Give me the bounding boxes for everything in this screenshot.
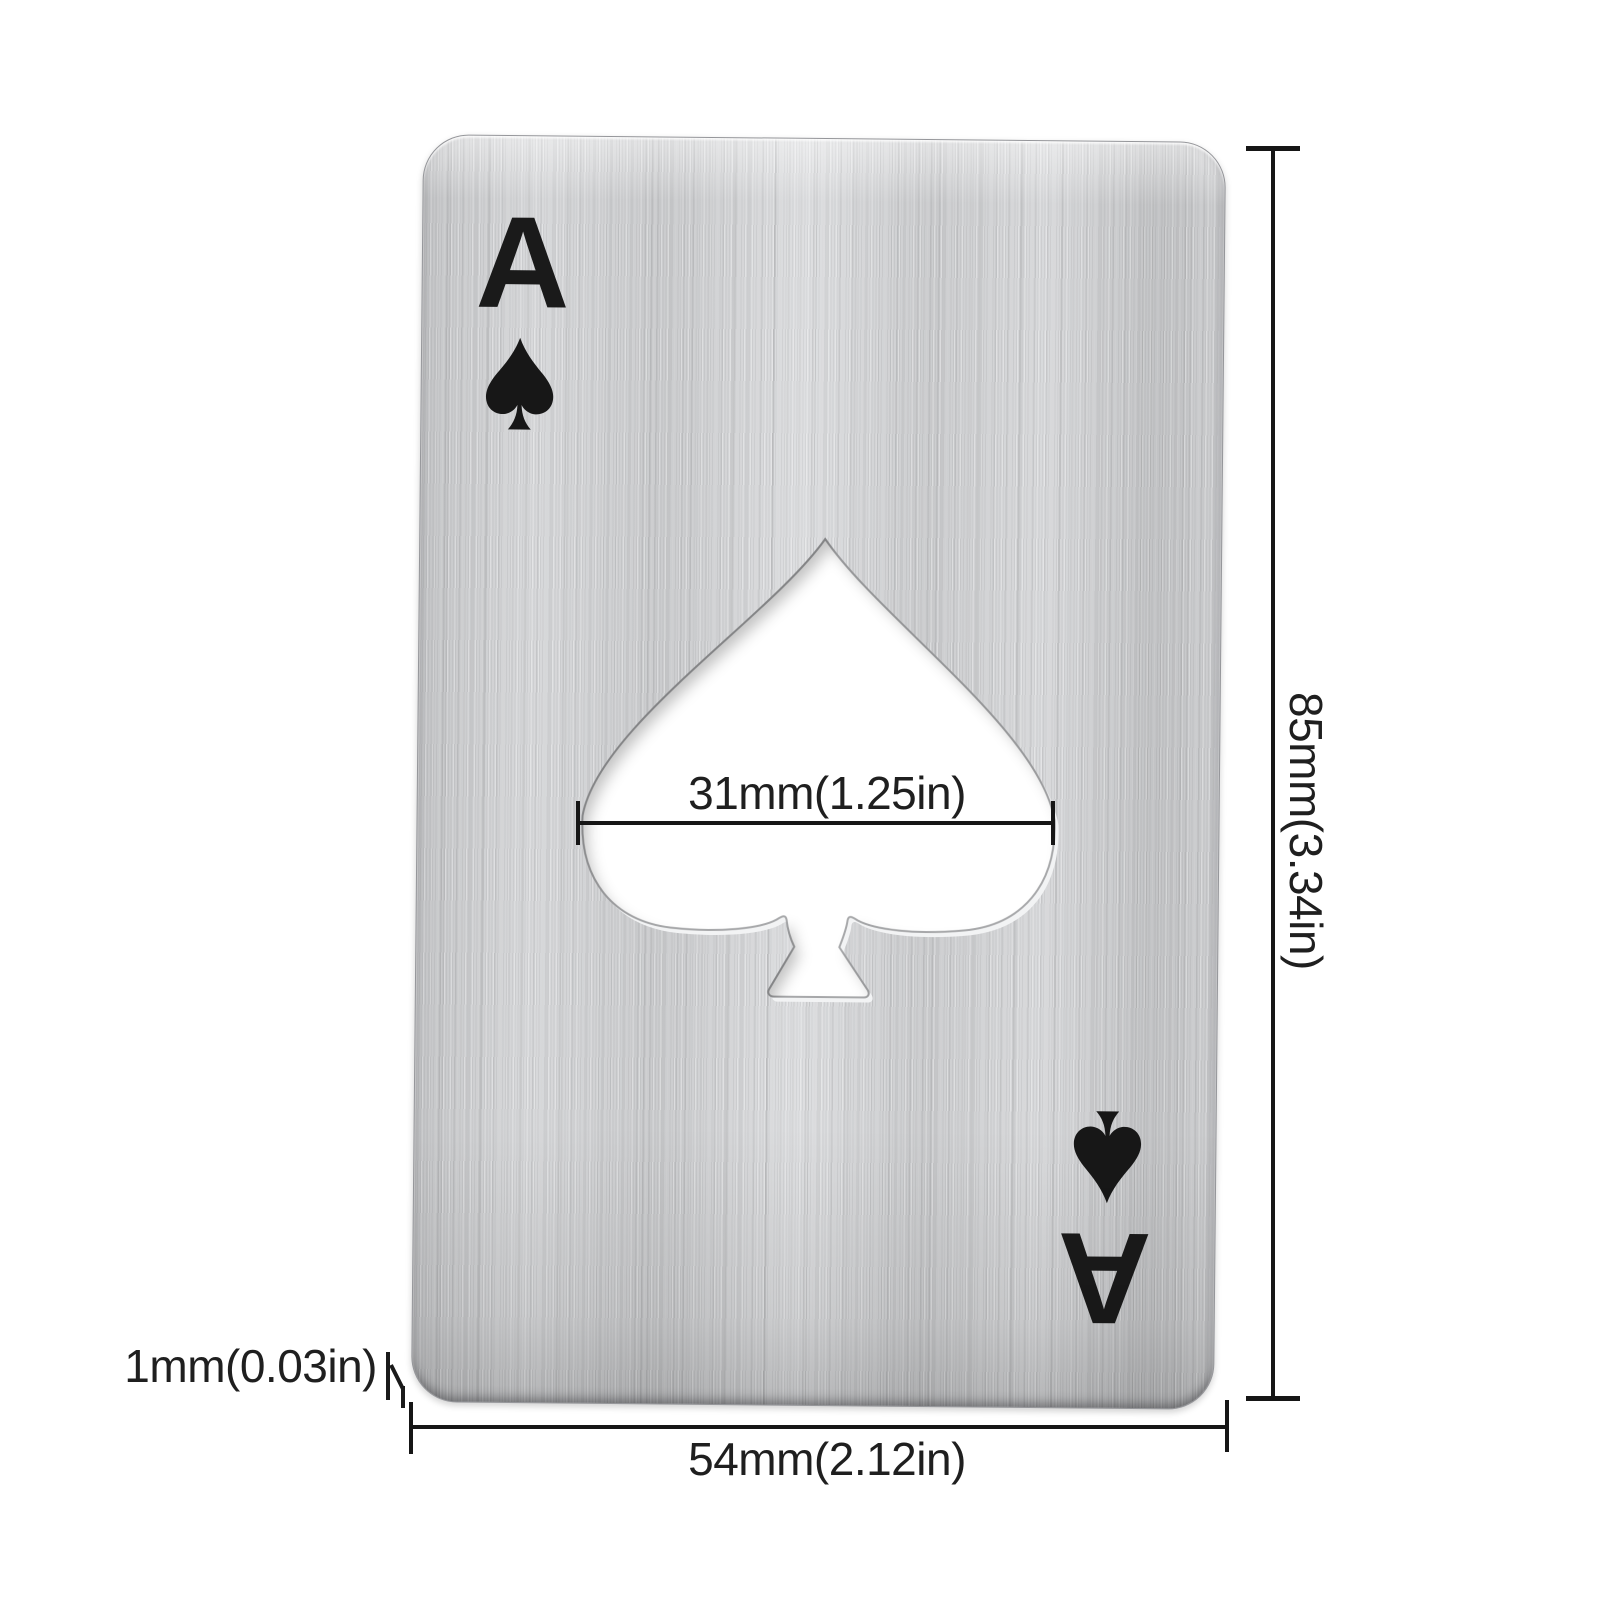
rank-letter-top-left: A — [475, 197, 566, 328]
thickness-leader-arrow — [381, 1348, 409, 1410]
card-corner-bottom-right: A — [1061, 1108, 1153, 1344]
cutout-width-dimension-line — [578, 821, 1055, 825]
card-width-dimension-line — [411, 1425, 1228, 1429]
card-height-label: 85mm(3.34in) — [1283, 692, 1329, 970]
cutout-width-tick-right — [1051, 801, 1055, 845]
spade-icon-top-left — [478, 335, 561, 433]
card-height-dimension-line — [1271, 148, 1275, 1400]
card-width-tick-right — [1225, 1400, 1229, 1452]
thickness-label: 1mm(0.03in) — [95, 1343, 377, 1389]
cutout-width-label: 31mm(1.25in) — [677, 770, 977, 816]
card-corner-top-left: A — [474, 197, 566, 433]
card-width-tick-left — [409, 1402, 413, 1454]
rank-letter-bottom-right: A — [1061, 1213, 1152, 1344]
card-height-tick-top — [1246, 146, 1300, 151]
cutout-width-tick-left — [576, 801, 580, 845]
product-dimension-diagram: A A — [0, 0, 1600, 1600]
card-height-tick-bottom — [1246, 1396, 1300, 1401]
card-width-label: 54mm(2.12in) — [677, 1436, 977, 1482]
spade-icon-bottom-right — [1066, 1108, 1149, 1206]
